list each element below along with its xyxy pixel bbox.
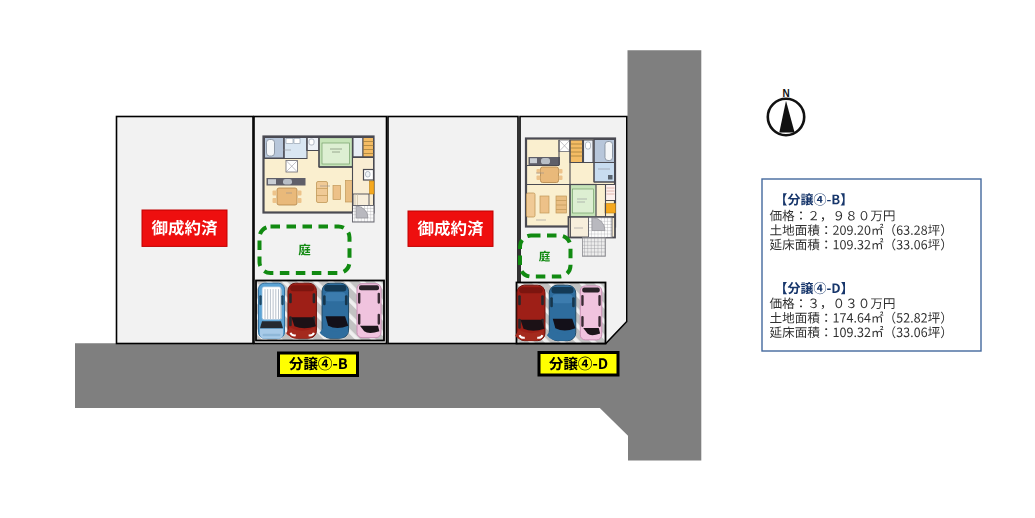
svg-text:N: N [782,88,789,99]
